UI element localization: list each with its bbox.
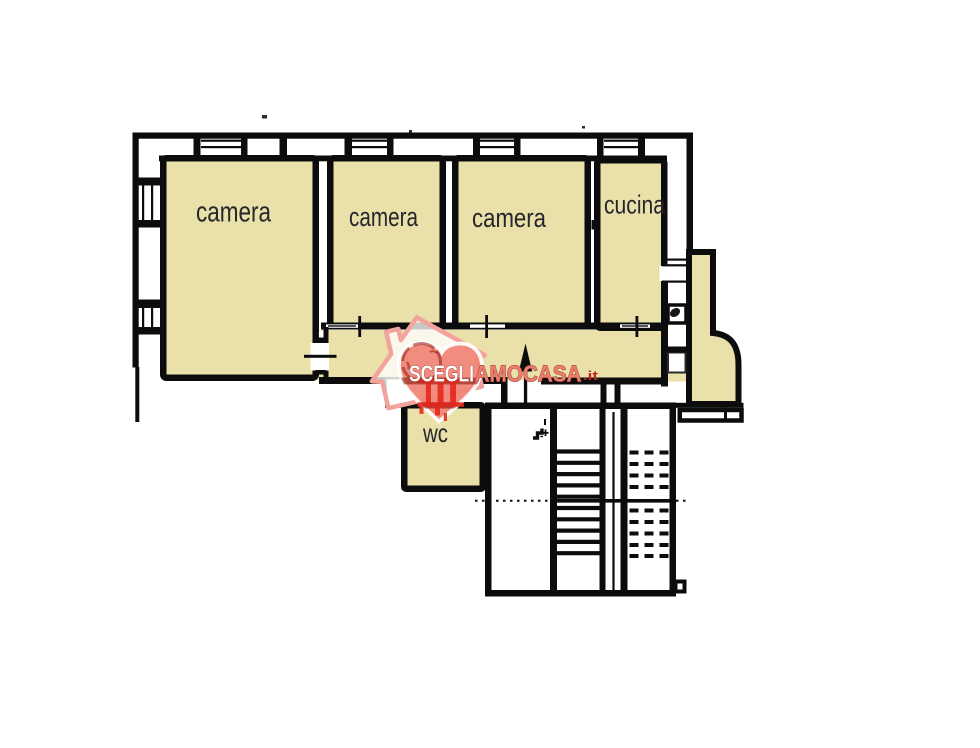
svg-text:SCEGLI: SCEGLI <box>409 361 474 387</box>
svg-text:camera: camera <box>472 203 547 233</box>
svg-text:camera: camera <box>196 197 271 229</box>
svg-text:camera: camera <box>349 202 419 232</box>
svg-text:.it: .it <box>583 368 599 383</box>
svg-text:AMOCASA: AMOCASA <box>475 361 582 387</box>
svg-text:wc: wc <box>422 418 448 448</box>
svg-text:cucina: cucina <box>604 190 665 220</box>
